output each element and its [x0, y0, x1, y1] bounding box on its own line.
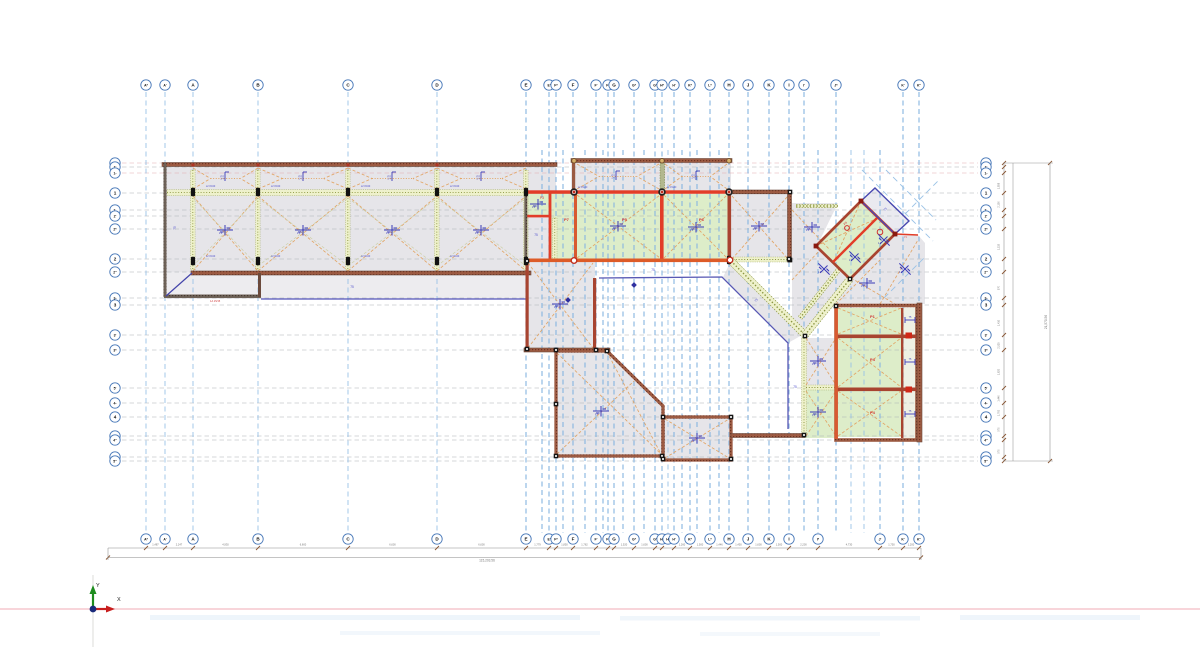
svg-text:1,600: 1,600: [641, 543, 648, 547]
svg-text:4-: 4-: [984, 402, 987, 406]
svg-text:75: 75: [173, 226, 177, 230]
svg-text:G: G: [612, 83, 616, 88]
svg-text:G': G': [653, 84, 657, 88]
svg-text:5'': 5'': [984, 460, 988, 464]
svg-text:3: 3: [985, 303, 988, 308]
svg-text:H': H': [672, 84, 675, 88]
svg-text:75: 75: [651, 268, 655, 272]
svg-text:F: F: [572, 537, 575, 542]
svg-text:I': I': [803, 84, 805, 88]
svg-text:1: 1: [114, 191, 117, 196]
svg-text:G': G': [653, 538, 657, 542]
svg-text:1-: 1-: [113, 172, 116, 176]
svg-text:570: 570: [998, 449, 1001, 454]
svg-text:2: 2: [985, 257, 988, 262]
svg-text:4: 4: [114, 415, 117, 420]
svg-text:1,500: 1,500: [776, 543, 783, 547]
svg-text:1,450: 1,450: [735, 543, 742, 547]
svg-text:2,535: 2,535: [998, 342, 1001, 349]
svg-text:3: 3: [114, 303, 117, 308]
svg-text:1,600: 1,600: [755, 543, 762, 547]
svg-text:1,750: 1,750: [888, 543, 895, 547]
svg-text:75: 75: [350, 285, 354, 289]
svg-text:X: X: [117, 597, 121, 603]
svg-text:3': 3': [114, 334, 117, 338]
svg-text:4,930: 4,930: [222, 543, 229, 547]
svg-text:1,260: 1,260: [679, 543, 686, 547]
svg-text:1,410: 1,410: [998, 319, 1001, 326]
svg-text:2'': 2'': [113, 271, 117, 275]
svg-text:6,600: 6,600: [478, 543, 485, 547]
svg-text:2,100: 2,100: [998, 201, 1001, 208]
svg-text:1,620: 1,620: [998, 368, 1001, 375]
svg-text:4,730: 4,730: [846, 543, 853, 547]
svg-text:G*: G*: [632, 538, 637, 542]
svg-text:s2 15/40: s2 15/40: [271, 255, 281, 258]
svg-text:s2 15/40: s2 15/40: [450, 255, 460, 258]
svg-text:E': E': [547, 84, 550, 88]
svg-text:A': A': [163, 84, 166, 88]
svg-text:1,487: 1,487: [152, 543, 159, 547]
svg-text:115,203.56: 115,203.56: [479, 559, 495, 563]
svg-text:K'': K'': [917, 538, 921, 542]
svg-text:1,858: 1,858: [998, 182, 1001, 189]
svg-text:5'': 5'': [113, 460, 117, 464]
svg-text:21,570.56: 21,570.56: [1044, 315, 1048, 329]
svg-text:s2 15/40: s2 15/40: [206, 255, 216, 258]
svg-text:2,200: 2,200: [800, 543, 807, 547]
svg-text:1,850: 1,850: [561, 543, 568, 547]
svg-text:4: 4: [985, 415, 988, 420]
svg-text:1,500: 1,500: [697, 543, 704, 547]
svg-text:5': 5': [114, 387, 117, 391]
svg-text:5': 5': [985, 387, 988, 391]
svg-text:2': 2': [985, 215, 988, 219]
svg-text:6,600: 6,600: [300, 543, 307, 547]
svg-text:P2: P2: [904, 235, 908, 239]
svg-text:s2 15/40: s2 15/40: [361, 255, 371, 258]
svg-text:I: I: [788, 83, 789, 88]
svg-text:1,200: 1,200: [908, 543, 915, 547]
svg-text:570: 570: [998, 285, 1001, 290]
svg-text:2,247: 2,247: [176, 543, 183, 547]
svg-text:J': J': [879, 538, 882, 542]
svg-text:K'': K'': [917, 84, 921, 88]
svg-text:P4: P4: [870, 410, 876, 415]
svg-text:J: J: [747, 83, 750, 88]
svg-text:F': F': [595, 84, 598, 88]
svg-text:P7: P7: [564, 217, 570, 222]
svg-text:s2 15/40: s2 15/40: [361, 185, 371, 188]
svg-text:G: G: [612, 537, 616, 542]
svg-text:F': F': [595, 538, 598, 542]
svg-text:E': E': [547, 538, 550, 542]
svg-text:1: 1: [985, 191, 988, 196]
svg-text:P5: P5: [622, 217, 628, 222]
svg-text:1,440: 1,440: [998, 395, 1001, 402]
svg-text:1,118: 1,118: [998, 243, 1001, 250]
svg-text:E: E: [524, 537, 527, 542]
svg-text:I: I: [788, 537, 789, 542]
svg-text:F: F: [572, 83, 575, 88]
svg-text:1,779: 1,779: [534, 543, 541, 547]
svg-text:6,600: 6,600: [389, 543, 396, 547]
svg-text:A': A': [163, 538, 166, 542]
svg-text:3': 3': [985, 334, 988, 338]
svg-text:G*: G*: [632, 84, 637, 88]
svg-text:1,446: 1,446: [716, 543, 723, 547]
svg-text:s2 15x40: s2 15x40: [667, 187, 677, 189]
svg-text:1,762: 1,762: [581, 543, 588, 547]
svg-text:P1: P1: [870, 314, 876, 319]
svg-text:2: 2: [114, 257, 117, 262]
svg-text:75: 75: [793, 385, 797, 389]
svg-text:s2 15/40: s2 15/40: [271, 185, 281, 188]
svg-text:P3: P3: [540, 196, 544, 200]
svg-text:H': H': [672, 538, 675, 542]
svg-text:2': 2': [114, 215, 117, 219]
svg-text:4'': 4'': [984, 439, 988, 443]
svg-text:1A 15/15: 1A 15/15: [210, 299, 221, 303]
svg-text:s2 15/40: s2 15/40: [450, 185, 460, 188]
svg-text:s2 15x40: s2 15x40: [578, 187, 588, 189]
svg-text:K': K': [901, 538, 904, 542]
svg-text:1-: 1-: [984, 172, 987, 176]
svg-text:1,700: 1,700: [998, 409, 1001, 416]
svg-text:4'': 4'': [113, 439, 117, 443]
svg-text:s2 15/40: s2 15/40: [206, 185, 216, 188]
svg-text:E: E: [524, 83, 527, 88]
svg-text:75: 75: [534, 233, 538, 237]
svg-text:2'': 2'': [984, 271, 988, 275]
svg-text:J: J: [747, 537, 750, 542]
svg-text:4-: 4-: [113, 402, 116, 406]
svg-text:Y: Y: [96, 583, 100, 589]
svg-text:P6: P6: [699, 217, 705, 222]
svg-text:K': K': [901, 84, 904, 88]
svg-text:570: 570: [998, 427, 1001, 432]
svg-text:P4: P4: [870, 357, 876, 362]
svg-text:1,520: 1,520: [621, 543, 628, 547]
